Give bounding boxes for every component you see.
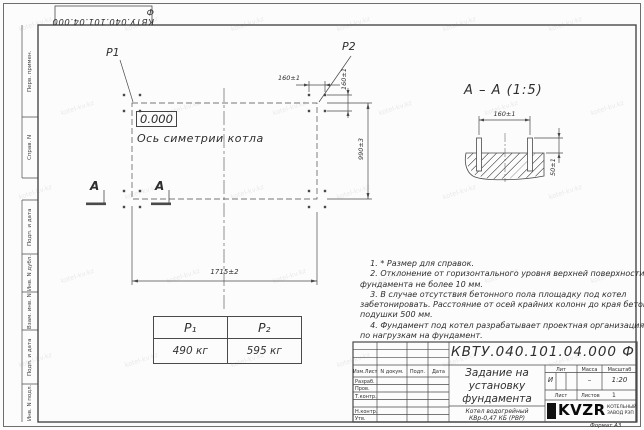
drawing-sheet: kotel-kv.kzkotel-kv.kzkotel-kv.kzkotel-k… [0,0,644,430]
revision-header-n-dokum: N докум. [377,369,407,375]
margin-field-inv-podl: Инв. N подл. [22,384,38,422]
kvzr-logo-badge [547,403,556,419]
load-point-p2-label: P2 [342,40,356,53]
note-line: фундамента не более 10 мм. [360,280,638,290]
p1-leader-line [120,60,133,102]
section-letter-right: А [155,179,164,193]
load-table-value-p1: 490 кг [154,339,228,363]
note-line: 2. Отклонение от горизонтального уровня … [360,269,638,279]
revision-header-data: Дата [428,369,449,375]
margin-field-perv-primen: Перв. примен. [22,25,38,117]
load-point-p1-label: P1 [106,46,120,59]
technical-notes: 1. * Размер для справок. 2. Отклонение о… [360,259,638,341]
section-dim-protrusion: 50±1 [549,158,557,176]
dim-width-1715: 1715±2 [132,268,317,276]
load-table-header-p2: P₂ [228,317,302,339]
note-line: 3. В случае отсутствия бетонного пола пл… [360,290,638,300]
doc-title-line-3: фундамента [449,393,545,405]
section-view-title: А – А (1:5) [464,83,543,98]
scale-label: Масштаб [602,367,637,373]
margin-field-sprav-n: Справ. N [22,117,38,178]
mass-label: Масса [577,367,602,373]
kvzr-logo-text: KVZR [558,401,606,419]
revision-header-izm-list: Изм.Лист [353,369,377,375]
lit-value: И [545,376,556,384]
anchor-bolt-right [528,138,533,171]
note-line: 1. * Размер для справок. [360,259,638,269]
product-name-line-2: КВр-0,47 КБ (РВР) [449,415,545,422]
note-line: подушки 500 мм. [360,310,638,320]
sheet-label: Лист [545,393,577,399]
margin-field-inv-dubl: Инв. N дубл. [22,254,38,292]
lit-label: Лит [545,367,577,373]
boiler-axis-label: Ось симетрии котла [137,132,264,145]
sheets-value: 1 [612,392,616,399]
elevation-mark: 0.000 [136,111,177,127]
format-label: Формат А3 [590,423,621,429]
load-table: P₁ P₂ 490 кг 595 кг [153,316,302,364]
sign-row-nkontr: Н.контр. [355,409,377,415]
sign-row-tkontr: Т.контр. [355,394,377,400]
logo-sub-line-2: ЗАВОД РЭП [607,411,634,416]
mass-value: – [577,376,602,384]
sheets-label: Листов [581,393,600,399]
drawing-linework [0,0,644,430]
sign-row-utv: Утв. [355,416,366,422]
doc-title-line-1: Задание на [449,367,545,379]
sign-row-prov: Пров. [355,386,370,392]
product-name-line-1: Котел водогрейный [449,408,545,415]
note-line: 4. Фундамент под котел разрабатывает про… [360,321,638,331]
margin-field-podp-data-2: Подп. и дата [22,330,38,384]
anchor-bolt-left [477,138,482,171]
title-block-designation: КВТУ.040.101.04.000 Ф [449,344,637,360]
section-letter-left: А [90,179,99,193]
sign-row-razrab: Разраб. [355,379,375,385]
logo-sub-line-1: КОТЕЛЬНЫЙ [607,405,637,410]
rotated-designation: КВТУ.040.101.04.000 Ф [52,6,154,26]
note-line: забетонировать. Расстояние от осей крайн… [360,300,638,310]
margin-field-vzam-inv: Взам. инв. N [22,292,38,330]
load-table-header-p1: P₁ [154,317,228,339]
dim-height-990: 990±3 [357,138,365,160]
section-dim-spacing: 160±1 [479,110,530,118]
dim-bolt-spacing-x: 160±1 [278,74,300,82]
dim-bolt-spacing-y: 160±1 [340,68,348,90]
margin-field-podp-data-1: Подп. и дата [22,200,38,254]
top-stamp-box: КВТУ.040.101.04.000 Ф [55,6,152,25]
load-table-value-p2: 595 кг [228,339,302,363]
note-line: по нагрузкам на фундамент. [360,331,638,341]
sheet-frame [4,4,641,427]
doc-title-line-2: установку [449,380,545,392]
revision-header-podp: Подп. [407,369,428,375]
scale-value: 1:20 [602,376,637,384]
